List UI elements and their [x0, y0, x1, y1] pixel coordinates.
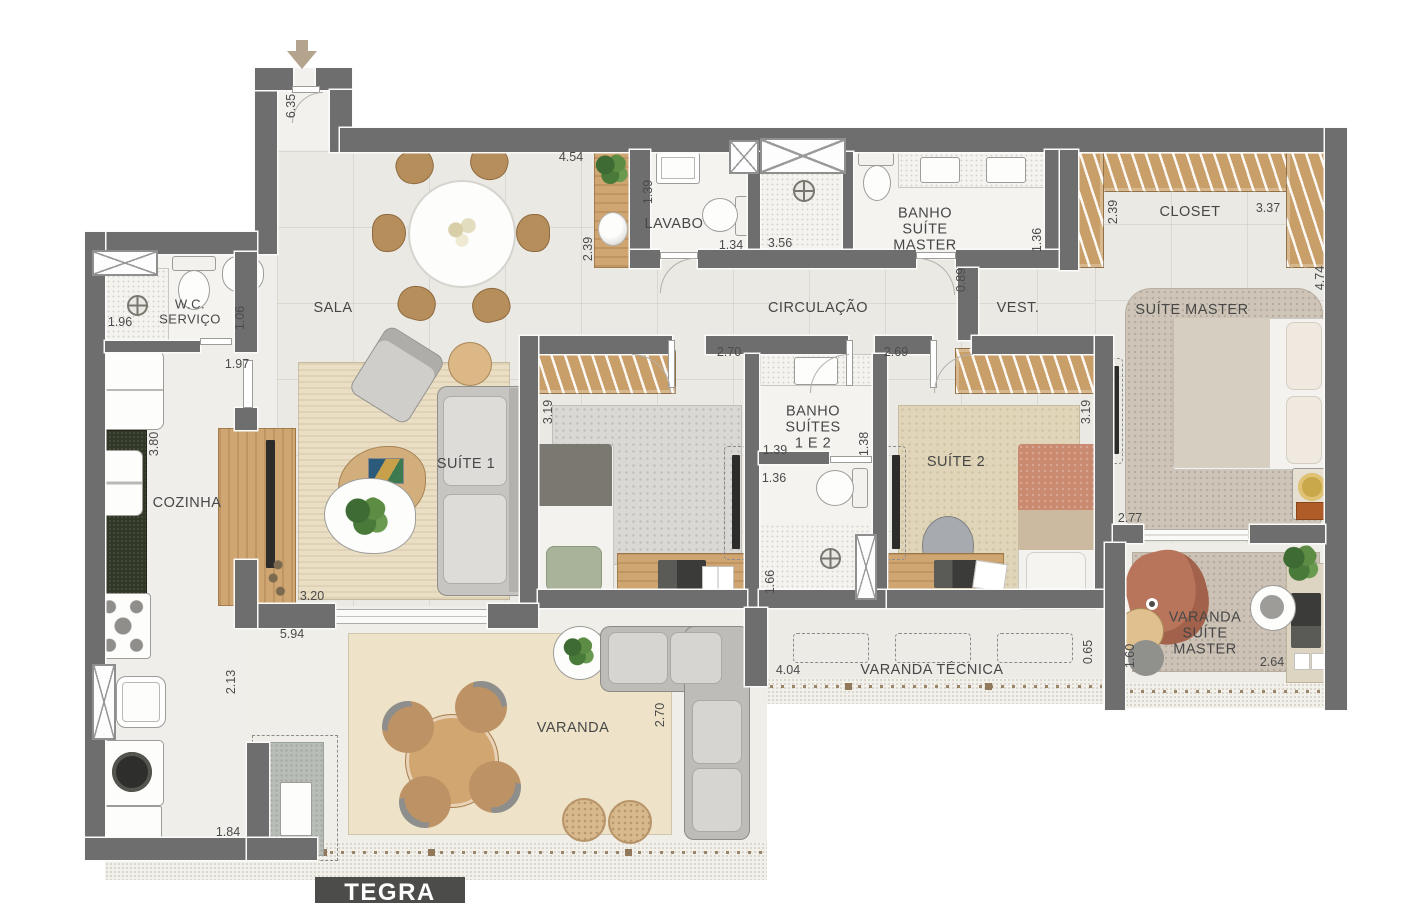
book-nightstand: [1296, 502, 1326, 520]
master-vanity-sink: [986, 157, 1026, 183]
balcony-edge-tecnica: [767, 678, 1105, 704]
room-label-varanda-tecnica: VARANDA TÉCNICA: [860, 662, 1003, 678]
room-label-varanda: VARANDA: [537, 720, 610, 736]
dim-tecnica-v: 0.65: [1081, 640, 1095, 664]
shaft: [855, 534, 877, 600]
equipment-outline: [895, 633, 971, 663]
railing-post: [625, 849, 632, 856]
dim-suite1-top: 2.70: [717, 345, 741, 359]
dining-chair: [516, 214, 550, 252]
shower-head-icon: [793, 180, 815, 202]
banho-suites-line-3: 1 E 2: [785, 436, 840, 452]
railing-post: [845, 683, 852, 690]
master-toilet-bowl: [863, 165, 891, 201]
room-label-varanda-suite-master: VARANDA SUÍTE MASTER: [1169, 610, 1242, 659]
room-label-circulacao: CIRCULAÇÃO: [768, 300, 868, 316]
vsm-line-3: MASTER: [1169, 642, 1242, 658]
equipment-outline: [793, 633, 869, 663]
room-label-banho-master: BANHO SUÍTE MASTER: [893, 206, 956, 255]
dim-sala-bottom: 3.20: [300, 589, 324, 603]
cabinet-knobs: [266, 560, 290, 600]
wall: [972, 336, 1113, 354]
dim-servico-h: 1.84: [216, 825, 240, 839]
dim-bs-166: 1.66: [763, 570, 777, 594]
room-label-closet: CLOSET: [1159, 204, 1220, 220]
room-label-suite-2: SUÍTE 2: [927, 454, 985, 470]
varanda-sofa-cushion: [692, 700, 742, 764]
dining-chair: [372, 214, 406, 252]
dim-bs-138: 1.38: [857, 432, 871, 456]
bed-master-duvet: [1172, 318, 1270, 468]
floor-plan: SALA W.C. SERVIÇO COZINHA LAVABO BANHO S…: [0, 0, 1402, 903]
wall: [956, 250, 1060, 268]
door-leaf-bs-inner: [830, 456, 872, 463]
wall: [745, 608, 767, 686]
banho-master-line-2: SUÍTE: [893, 222, 956, 238]
wall: [1113, 525, 1143, 543]
dim-vsm-v: 1.60: [1123, 644, 1137, 668]
wall: [85, 838, 247, 860]
shaft: [92, 250, 158, 276]
tv-suite-2: [892, 455, 900, 549]
wall: [630, 150, 650, 262]
dim-kitchen-door: 1.97: [225, 357, 249, 371]
floor-lamp: [1146, 598, 1158, 610]
banho-suites-line-2: SUÍTES: [785, 420, 840, 436]
dim-wc-v: 1.06: [233, 306, 247, 330]
chair-vsm-seat: [1260, 595, 1284, 619]
sculpture: [598, 212, 628, 246]
paper-suite-2: [972, 560, 1008, 592]
dim-bs-139: 1.39: [763, 443, 787, 457]
bed-master-pillow: [1286, 396, 1322, 464]
dim-sala-left: 2.39: [581, 237, 595, 261]
equipment-outline: [997, 633, 1073, 663]
dim-wc-shower: 1.96: [108, 315, 132, 329]
wall: [1060, 150, 1078, 270]
book-suite-1: [702, 566, 734, 590]
dim-sala-594: 5.94: [280, 627, 304, 641]
sofa-sala-cushion: [443, 396, 507, 486]
wall: [520, 336, 538, 608]
dim-vsm-h: 2.64: [1260, 655, 1284, 669]
wall: [105, 341, 200, 352]
railing-tecnica: [770, 685, 1102, 688]
banho-master-line-3: MASTER: [893, 238, 956, 254]
wall: [488, 604, 538, 628]
vsm-line-1: VARANDA: [1169, 610, 1242, 626]
wc-line-1: W.C.: [159, 297, 221, 312]
bs-toilet-tank: [852, 468, 868, 508]
dim-suite2-right: 3.19: [1079, 400, 1093, 424]
wall: [85, 232, 105, 860]
entry-arrow-icon: [287, 51, 317, 69]
wall: [1250, 525, 1325, 543]
shower-head-icon: [820, 548, 841, 569]
laundry-tank: [116, 676, 166, 728]
side-table: [448, 342, 492, 386]
dim-banho-master-v: 1.36: [1030, 228, 1044, 252]
bed-suite-1-blanket: [534, 444, 612, 506]
kitchen-sink: [101, 450, 143, 516]
master-vanity-sink: [920, 157, 960, 183]
banho-master-line-1: BANHO: [893, 206, 956, 222]
wall: [630, 250, 660, 268]
dim-circ: 0.89: [954, 268, 968, 292]
wall: [235, 408, 257, 430]
wall: [698, 250, 916, 268]
dim-right-wall: 4.74: [1313, 266, 1327, 290]
laptop-suite-1: [658, 560, 706, 590]
door-leaf-wc: [200, 338, 232, 345]
dim-closet-v: 2.39: [1106, 200, 1120, 224]
room-label-lavabo: LAVABO: [645, 216, 704, 232]
dim-suite1-left: 3.19: [541, 400, 555, 424]
brand-name: TEGRA: [315, 877, 465, 903]
room-label-banho-suites: BANHO SUÍTES 1 E 2: [785, 404, 840, 453]
closet-wardrobe-right: [1286, 150, 1330, 268]
room-label-cozinha: COZINHA: [153, 495, 222, 511]
sliding-door-master: [1143, 529, 1248, 541]
fridge: [98, 350, 164, 430]
shaft: [729, 140, 759, 174]
lavabo-toilet-bowl: [702, 198, 738, 232]
wall: [255, 68, 293, 90]
wall: [235, 560, 257, 628]
wall: [255, 68, 277, 254]
plant-sideboard: [595, 153, 629, 187]
dim-banho-master: 3.56: [768, 236, 792, 250]
sliding-door-sala: [335, 609, 488, 624]
dim-lavabo-h: 1.34: [719, 238, 743, 252]
wall: [1325, 128, 1347, 710]
varanda-sofa-cushion: [670, 632, 722, 684]
bed-master-pillow: [1286, 322, 1322, 390]
bs-toilet-bowl: [816, 470, 854, 506]
pouf: [608, 800, 652, 844]
dim-lavabo-v: 1.39: [641, 180, 655, 204]
bed-suite-2-blanket: [1018, 444, 1096, 510]
wall: [235, 252, 257, 352]
dim-bs-136: 1.36: [762, 471, 786, 485]
desk-drawer: [1294, 653, 1310, 670]
room-label-suite-master: SUÍTE MASTER: [1135, 302, 1248, 318]
gold-tray: [1298, 473, 1326, 501]
dim-tecnica: 4.04: [776, 663, 800, 677]
lavabo-sink: [656, 152, 700, 184]
room-label-vest: VEST.: [997, 300, 1040, 316]
wall: [745, 354, 759, 608]
tv-sala: [266, 440, 275, 568]
wall: [520, 336, 672, 354]
bed-suite-2-throw: [1018, 510, 1096, 550]
pouf: [562, 798, 606, 842]
wall: [247, 838, 317, 860]
varanda-sofa-cushion: [692, 768, 742, 832]
room-label-wc-servico: W.C. SERVIÇO: [159, 297, 221, 326]
dim-varanda: 2.70: [653, 703, 667, 727]
tv-suite-1: [732, 455, 740, 549]
wall: [1045, 150, 1061, 262]
plant-vsm: [1283, 543, 1319, 585]
varanda-sofa-cushion: [608, 632, 668, 684]
banho-suites-line-1: BANHO: [785, 404, 840, 420]
shower-head-icon: [127, 295, 148, 316]
wall: [1105, 543, 1125, 710]
dim-master-bottom: 2.77: [1118, 511, 1142, 525]
laptop-vsm: [1291, 593, 1321, 648]
wall: [887, 590, 1113, 608]
railing-post: [985, 683, 992, 690]
room-label-suite-1: SUÍTE 1: [437, 456, 495, 472]
shaft: [92, 664, 116, 740]
grill-door: [280, 782, 312, 836]
master-toilet-tank: [858, 152, 894, 166]
dim-sala-top: 4.54: [559, 150, 583, 164]
dim-cozinha: 3.80: [147, 432, 161, 456]
shaft: [760, 138, 846, 174]
dining-table: [408, 180, 516, 288]
washer-door: [112, 752, 152, 792]
railing-post: [428, 849, 435, 856]
sofa-sala-cushion: [443, 494, 507, 584]
room-label-sala: SALA: [313, 300, 352, 316]
dim-servico: 2.13: [224, 670, 238, 694]
dim-closet-h: 3.37: [1256, 201, 1280, 215]
wc-line-2: SERVIÇO: [159, 312, 221, 327]
bed-suite-1-pillow: [546, 546, 602, 592]
dim-hall: 6.35: [284, 94, 298, 118]
balcony-edge-vsm: [1125, 683, 1325, 708]
plant-coffee-table: [344, 496, 390, 538]
laundry-cabinet: [98, 806, 162, 842]
railing-vsm: [1130, 690, 1322, 693]
vsm-line-2: SUÍTE: [1169, 626, 1242, 642]
varanda-plant: [563, 636, 595, 668]
wardrobe-suite-2: [955, 348, 1099, 394]
dim-suite2-top: 2.69: [884, 345, 908, 359]
wall: [538, 590, 747, 608]
wall: [316, 68, 352, 90]
brand-logo: TEGRA ID: [315, 877, 465, 903]
wc-toilet-tank: [172, 256, 216, 271]
